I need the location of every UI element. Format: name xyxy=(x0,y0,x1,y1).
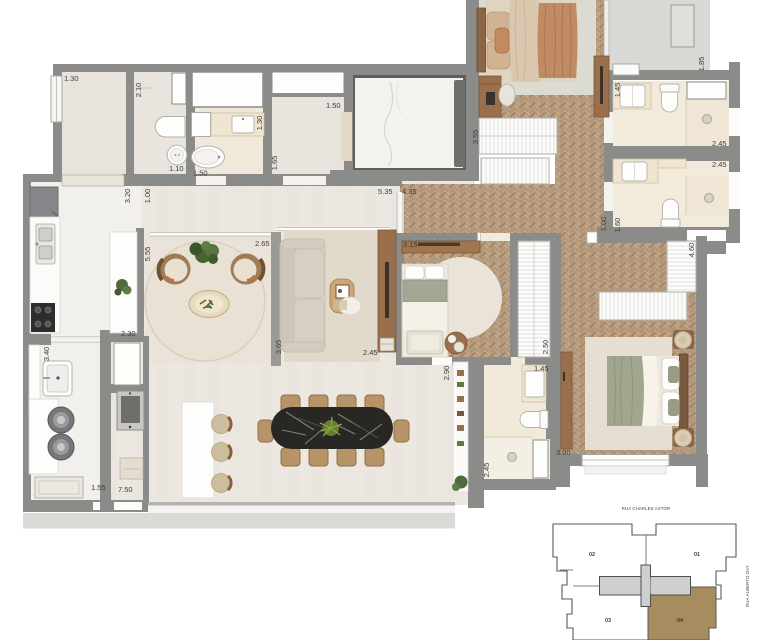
svg-text:1.10: 1.10 xyxy=(169,164,184,173)
svg-text:3.00: 3.00 xyxy=(556,448,571,457)
svg-text:3.15: 3.15 xyxy=(403,240,418,249)
svg-text:02: 02 xyxy=(589,552,595,558)
svg-text:1.50: 1.50 xyxy=(193,169,208,178)
svg-text:2.45: 2.45 xyxy=(712,139,727,148)
svg-text:1.55: 1.55 xyxy=(91,483,106,492)
svg-text:3.20: 3.20 xyxy=(123,189,132,204)
svg-text:1.45: 1.45 xyxy=(613,83,622,98)
svg-text:5.55: 5.55 xyxy=(143,247,152,262)
svg-text:7.50: 7.50 xyxy=(118,485,133,494)
svg-text:1.00: 1.00 xyxy=(599,217,608,232)
svg-text:4.35: 4.35 xyxy=(402,187,417,196)
svg-text:3.55: 3.55 xyxy=(471,130,480,145)
svg-text:1.65: 1.65 xyxy=(270,156,279,171)
svg-text:2.30: 2.30 xyxy=(121,329,136,338)
svg-text:1.45: 1.45 xyxy=(534,364,549,373)
svg-text:1.30: 1.30 xyxy=(255,116,264,131)
svg-text:2.45: 2.45 xyxy=(482,463,491,478)
svg-text:01: 01 xyxy=(694,552,700,558)
svg-text:RUA ALBERTO DAY: RUA ALBERTO DAY xyxy=(745,565,750,607)
svg-text:2.45: 2.45 xyxy=(363,348,378,357)
svg-text:2.10: 2.10 xyxy=(134,83,143,98)
svg-text:2.65: 2.65 xyxy=(255,239,270,248)
svg-text:5.35: 5.35 xyxy=(378,187,393,196)
svg-text:1.60: 1.60 xyxy=(613,218,622,233)
svg-text:2.50: 2.50 xyxy=(541,340,550,355)
svg-text:4.60: 4.60 xyxy=(687,243,696,258)
svg-text:1.30: 1.30 xyxy=(64,74,79,83)
svg-text:1.50: 1.50 xyxy=(326,101,341,110)
svg-text:04: 04 xyxy=(677,618,684,624)
svg-text:RUA CHARLES ASTOR: RUA CHARLES ASTOR xyxy=(622,506,671,511)
svg-text:1.00: 1.00 xyxy=(143,189,152,204)
svg-text:2.90: 2.90 xyxy=(442,366,451,381)
svg-text:03: 03 xyxy=(605,618,611,624)
svg-text:2.45: 2.45 xyxy=(712,160,727,169)
svg-text:3.40: 3.40 xyxy=(42,347,51,362)
svg-text:1.85: 1.85 xyxy=(697,57,706,72)
svg-text:3.65: 3.65 xyxy=(274,340,283,355)
